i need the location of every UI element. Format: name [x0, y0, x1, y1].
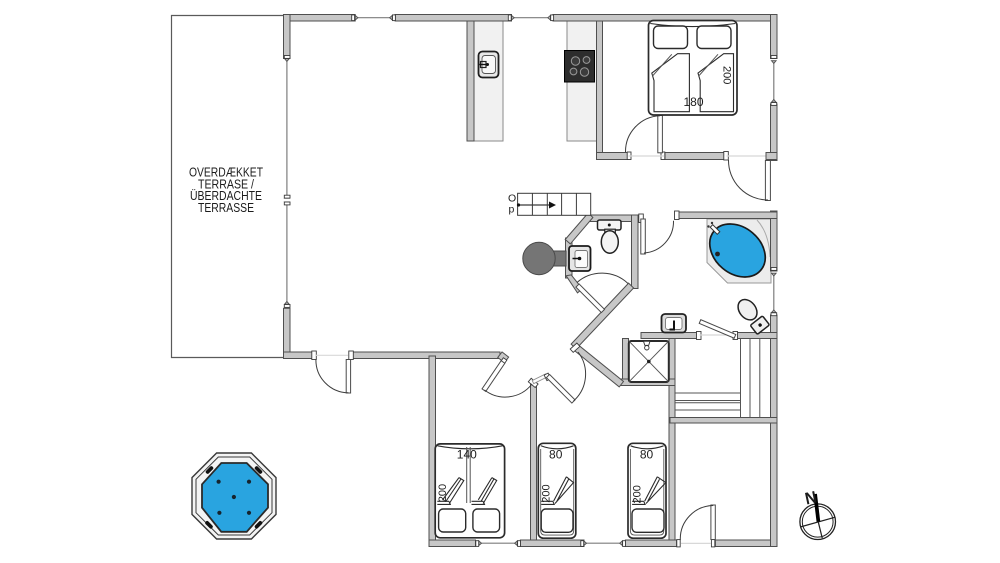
svg-text:200: 200	[720, 66, 732, 84]
svg-text:TERRASSE: TERRASSE	[198, 200, 254, 215]
svg-text:200: 200	[631, 485, 643, 503]
svg-text:140: 140	[457, 447, 477, 461]
svg-text:80: 80	[640, 447, 654, 461]
svg-text:200: 200	[540, 484, 552, 502]
svg-text:200: 200	[437, 484, 449, 502]
svg-text:180: 180	[683, 95, 703, 109]
svg-text:p: p	[509, 204, 515, 216]
svg-text:80: 80	[549, 447, 563, 461]
